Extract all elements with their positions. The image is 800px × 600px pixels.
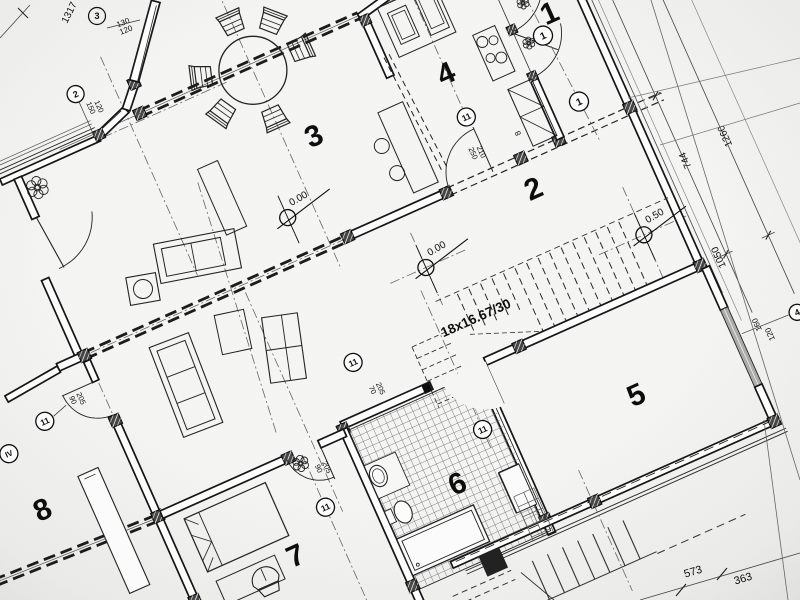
- svg-text:3: 3: [94, 11, 99, 21]
